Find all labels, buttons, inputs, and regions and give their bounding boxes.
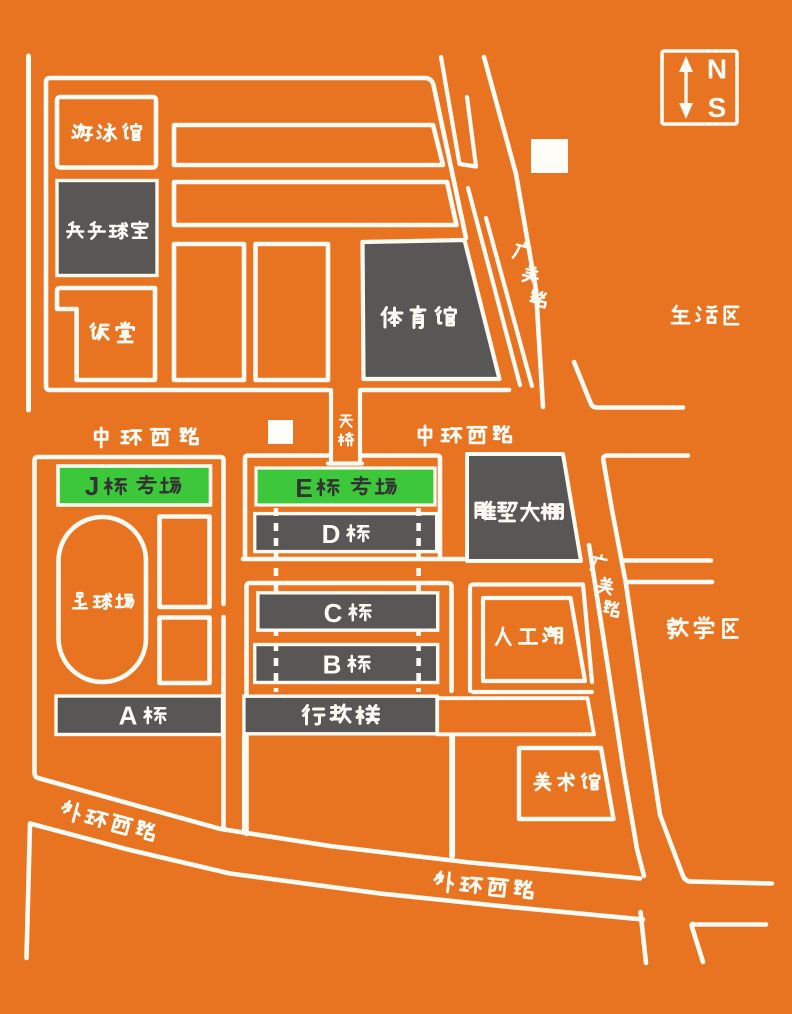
- svg-text:N: N: [707, 54, 727, 85]
- svg-text:S: S: [708, 92, 727, 123]
- svg-text:C: C: [324, 598, 343, 628]
- svg-text:E: E: [295, 473, 312, 503]
- svg-text:B: B: [323, 650, 342, 680]
- svg-text:A: A: [119, 701, 138, 731]
- svg-text:D: D: [322, 519, 341, 549]
- svg-text:J: J: [85, 471, 99, 501]
